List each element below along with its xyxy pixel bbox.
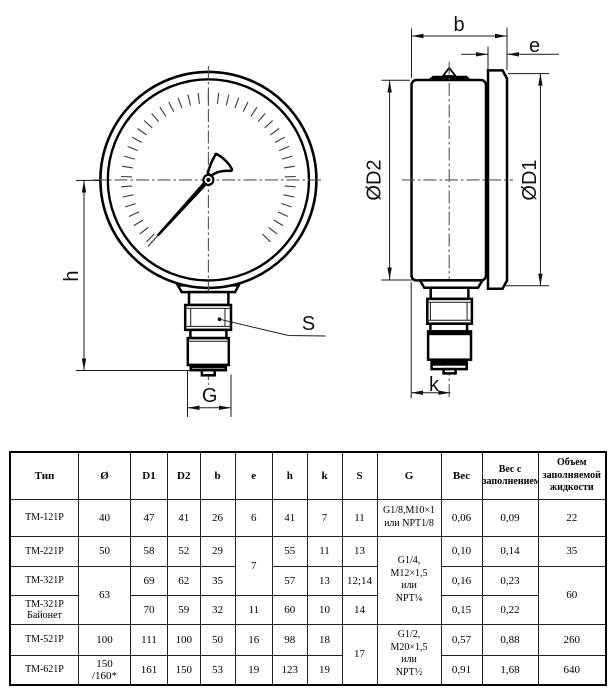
svg-text:h: h: [61, 270, 83, 281]
svg-text:ØD2: ØD2: [364, 159, 386, 200]
svg-text:ØD1: ØD1: [519, 159, 541, 200]
svg-text:k: k: [429, 374, 440, 396]
svg-text:G: G: [202, 385, 218, 407]
svg-text:S: S: [302, 313, 315, 335]
svg-text:b: b: [453, 14, 464, 36]
svg-text:e: e: [529, 35, 540, 57]
